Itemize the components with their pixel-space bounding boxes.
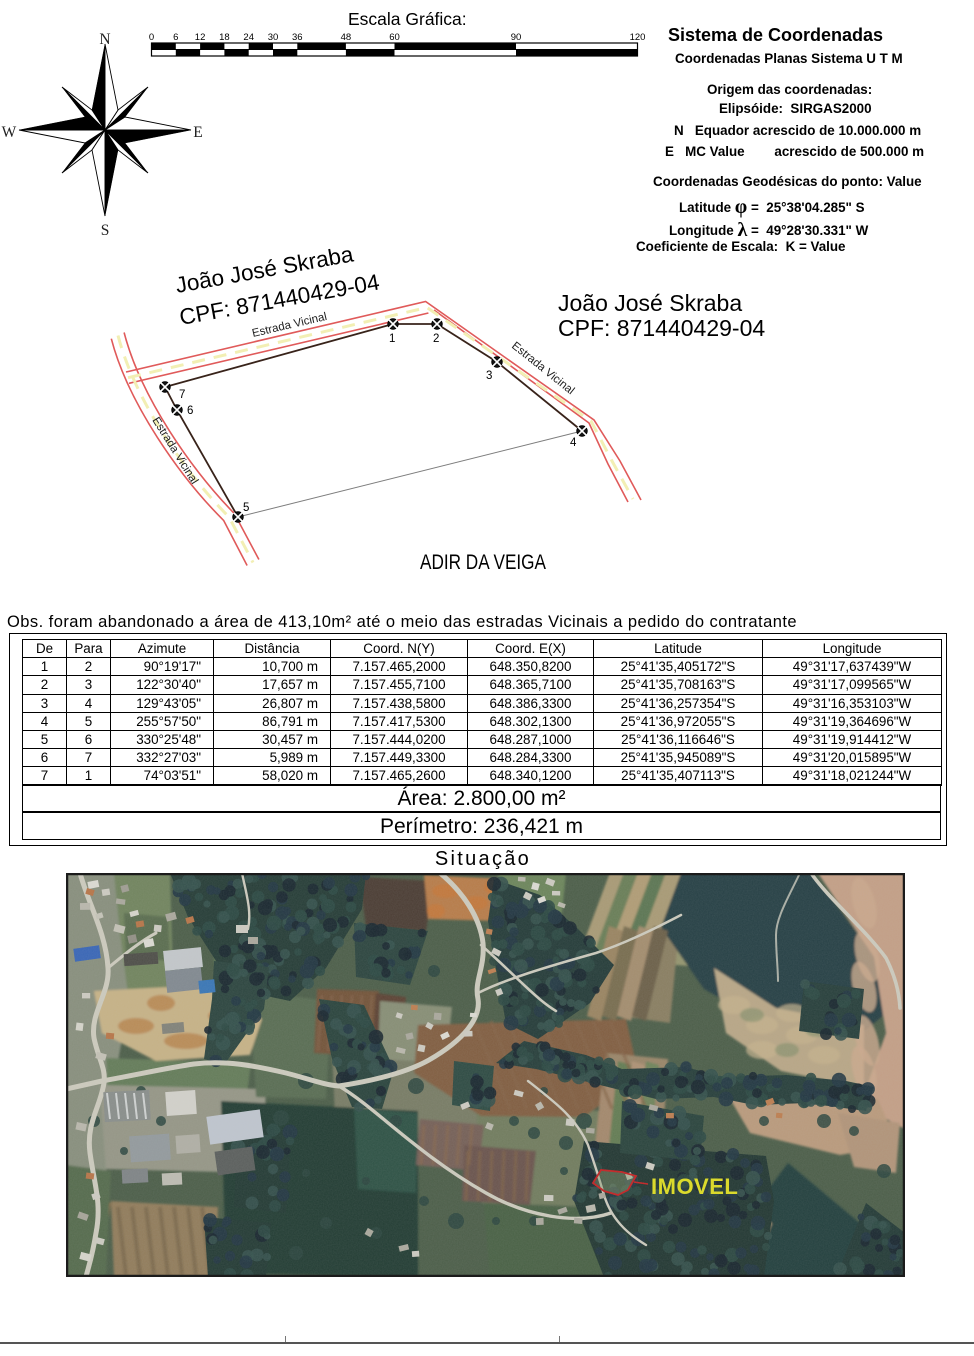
svg-text:João José Skraba: João José Skraba xyxy=(558,290,742,316)
svg-text:60: 60 xyxy=(389,32,400,43)
svg-text:36: 36 xyxy=(292,32,303,43)
svg-text:90: 90 xyxy=(511,32,522,43)
svg-text:E: E xyxy=(193,124,202,141)
svg-text:30: 30 xyxy=(268,32,279,43)
svg-text:48: 48 xyxy=(341,32,352,43)
svg-text:Estrada Vicinal: Estrada Vicinal xyxy=(149,415,200,486)
svg-text:ADIR DA VEIGA: ADIR DA VEIGA xyxy=(420,551,546,574)
svg-text:W: W xyxy=(2,124,17,141)
svg-text:5: 5 xyxy=(243,502,249,514)
svg-text:N: N xyxy=(99,31,110,48)
svg-text:4: 4 xyxy=(570,437,577,449)
svg-text:CPF: 871440429-04: CPF: 871440429-04 xyxy=(558,315,765,341)
svg-text:18: 18 xyxy=(219,32,230,43)
svg-text:S: S xyxy=(101,222,110,239)
svg-text:7: 7 xyxy=(179,389,185,401)
svg-text:3: 3 xyxy=(486,370,492,382)
svg-text:120: 120 xyxy=(630,32,646,43)
svg-text:2: 2 xyxy=(433,333,439,345)
svg-text:24: 24 xyxy=(243,32,254,43)
svg-text:1: 1 xyxy=(389,333,395,345)
svg-text:6: 6 xyxy=(187,405,193,417)
